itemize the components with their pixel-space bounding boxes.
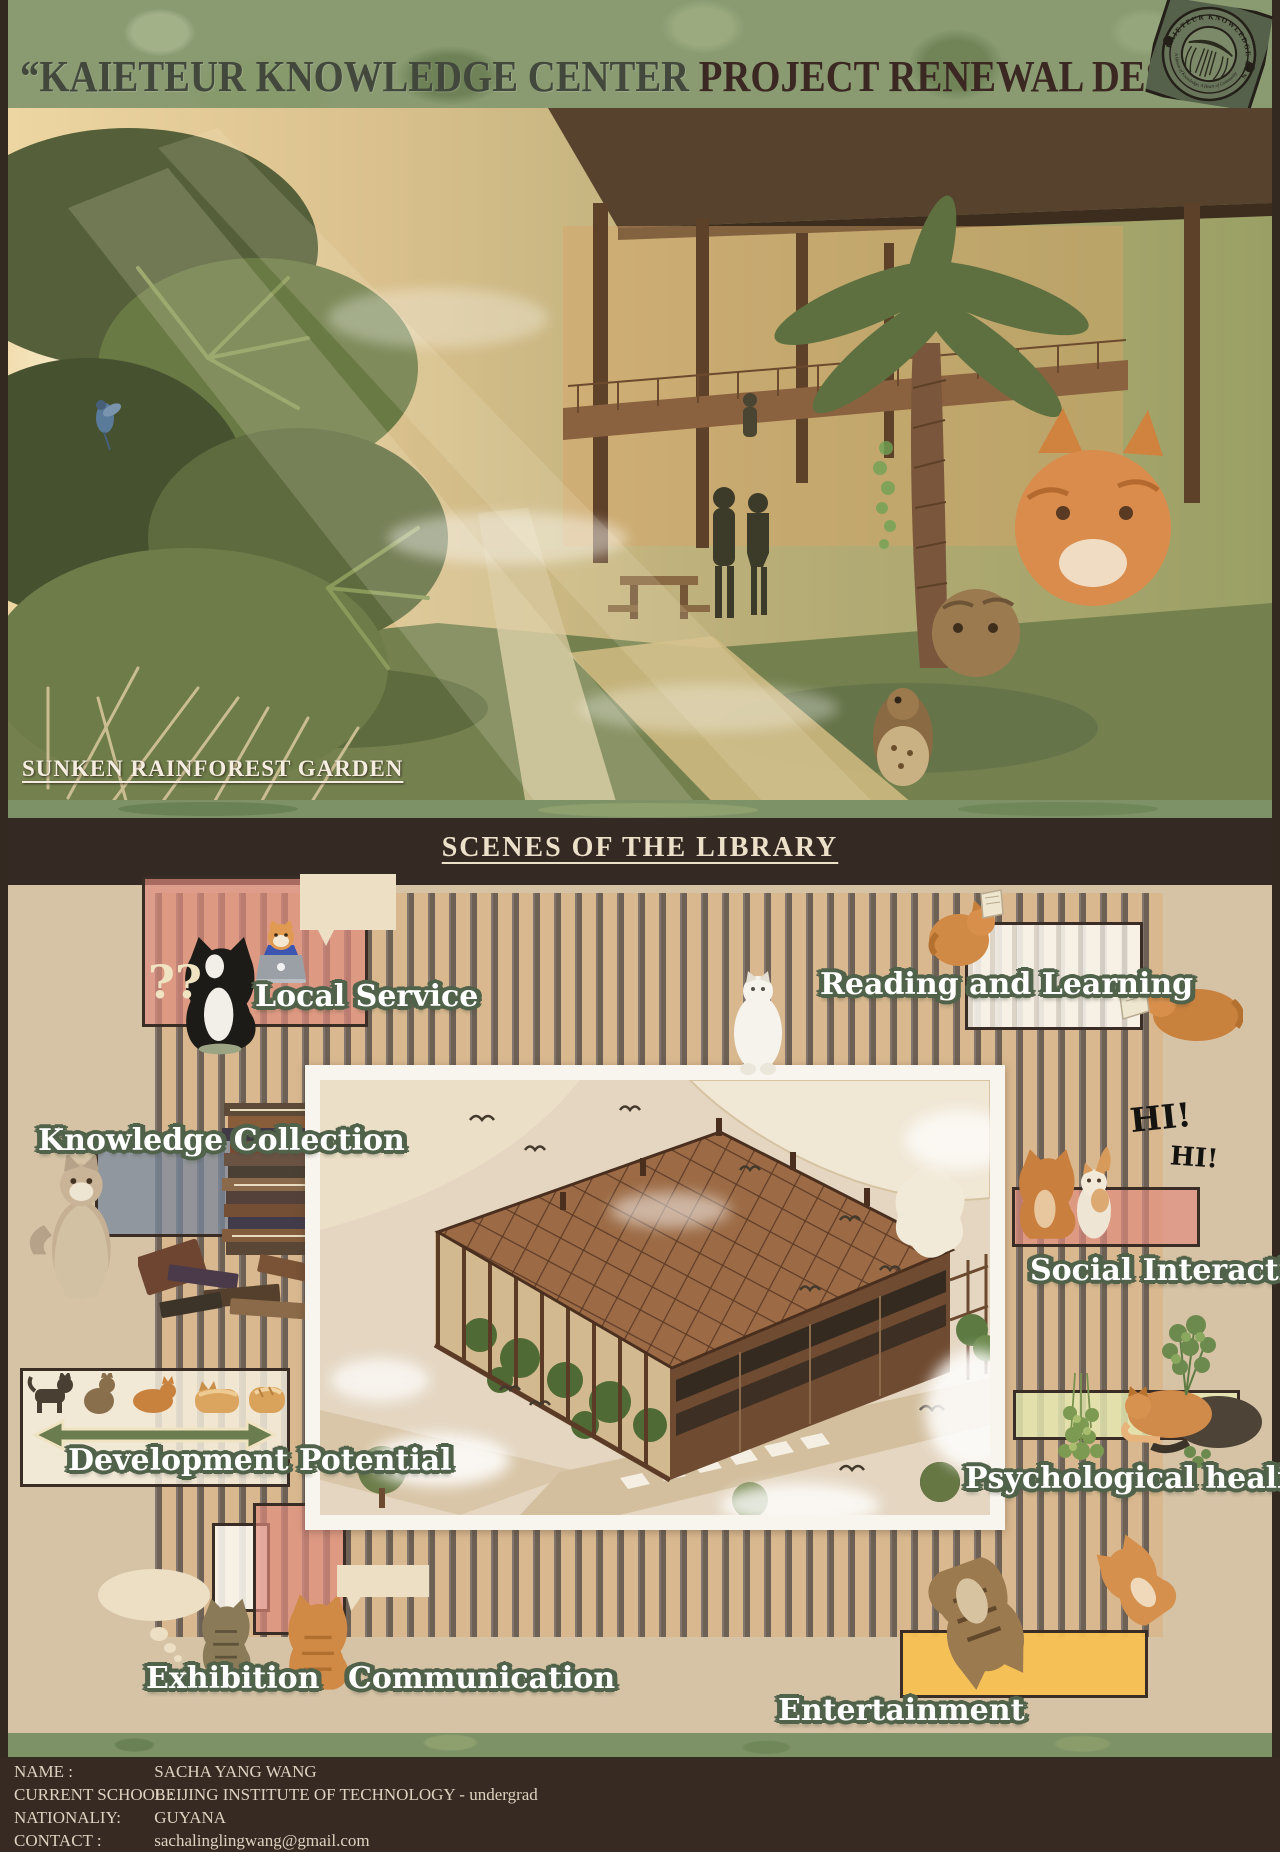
speech-bubble-local xyxy=(300,874,396,930)
section-heading: SCENES OF THE LIBRARY xyxy=(8,832,1272,864)
label-social-interaction: Social Interaction xyxy=(1030,1253,1280,1288)
footer-credits: NAME : SACHA YANG WANG CURRENT SCHOOL : … xyxy=(0,1757,1280,1852)
grass-strip-bottom xyxy=(8,1733,1272,1757)
giant-tabby-cat xyxy=(932,589,1020,677)
header-banner: “KAIETEUR KNOWLEDGE CENTER PROJECT RENEW… xyxy=(8,0,1272,112)
evolution-cat-sitting xyxy=(84,1373,115,1414)
rainforest-render xyxy=(8,108,1272,818)
evolution-bread xyxy=(249,1387,285,1413)
rainforest-garden-image: SUNKEN RAINFOREST GARDEN xyxy=(8,108,1272,818)
label-psychological-healing: Psychological healing xyxy=(965,1461,1280,1496)
question-marks: ?? xyxy=(148,955,202,1009)
label-local-service: Local Service xyxy=(255,979,478,1014)
footer-value: GUYANA xyxy=(154,1808,226,1827)
thought-dot-1 xyxy=(150,1627,168,1641)
cat-to-bread-evolution xyxy=(27,1373,285,1415)
speech-bubble-tail xyxy=(318,930,334,946)
poster-page: “KAIETEUR KNOWLEDGE CENTER PROJECT RENEW… xyxy=(0,0,1280,1852)
hi-text-2: HI! xyxy=(1169,1141,1219,1174)
poster-title-part1: “KAIETEUR KNOWLEDGE CENTER xyxy=(20,52,699,101)
library-scenes-section: ?? Local Service xyxy=(8,885,1272,1733)
reading-cat-left xyxy=(925,888,1005,976)
footer-label: CURRENT SCHOOL : xyxy=(14,1785,150,1805)
footer-row-school: CURRENT SCHOOL : BEIJING INSTITUTE OF TE… xyxy=(14,1785,538,1805)
speech-bubble-tail xyxy=(347,1597,361,1611)
footer-row-contact: CONTACT : sachalinglingwang@gmail.com xyxy=(14,1831,370,1851)
evolution-cat-loaf xyxy=(133,1376,176,1413)
speech-bubble-communication xyxy=(337,1565,429,1597)
fluffy-cat xyxy=(28,1155,124,1303)
label-entertainment: Entertainment xyxy=(778,1693,1024,1728)
poster-title: “KAIETEUR KNOWLEDGE CENTER PROJECT RENEW… xyxy=(20,51,1260,102)
footer-value: sachalinglingwang@gmail.com xyxy=(154,1831,369,1850)
laptop-logo xyxy=(277,963,285,971)
hanging-plant xyxy=(1045,1373,1121,1473)
label-knowledge-collection: Knowledge Collection xyxy=(38,1123,405,1158)
cream-kitten xyxy=(1070,1137,1120,1252)
open-book xyxy=(981,890,1003,918)
label-reading-learning: Reading and Learning xyxy=(820,967,1193,1002)
footer-label: NATIONALIY: xyxy=(14,1808,150,1828)
section-divider-band: SCENES OF THE LIBRARY xyxy=(8,818,1272,885)
laptop-cat xyxy=(254,921,308,985)
label-communication: Communication xyxy=(348,1661,615,1696)
hero-caption: SUNKEN RAINFOREST GARDEN xyxy=(22,756,403,782)
footer-label: NAME : xyxy=(14,1762,150,1782)
footer-value: SACHA YANG WANG xyxy=(154,1762,316,1781)
footer-row-name: NAME : SACHA YANG WANG xyxy=(14,1762,317,1782)
evolution-cat-standing xyxy=(30,1373,73,1413)
footer-value: BEIJING INSTITUTE OF TECHNOLOGY - underg… xyxy=(154,1785,538,1804)
hi-text-1: HI! xyxy=(1128,1095,1193,1140)
potted-plant xyxy=(1150,1307,1222,1399)
footer-row-nationality: NATIONALIY: GUYANA xyxy=(14,1808,226,1828)
label-development-potential: Development Potential xyxy=(68,1443,452,1478)
person-on-path xyxy=(743,393,757,437)
kaieteur-logo: KAIETEUR KNOWLEDGE CENTER A Haven of Kno… xyxy=(1145,0,1273,112)
label-exhibition: Exhibition xyxy=(146,1661,319,1696)
thought-bubble xyxy=(98,1569,210,1621)
footer-label: CONTACT : xyxy=(14,1831,150,1851)
white-cat-figure xyxy=(720,971,794,1075)
evolution-bread-cat xyxy=(195,1381,239,1413)
thought-dot-2 xyxy=(164,1643,176,1653)
